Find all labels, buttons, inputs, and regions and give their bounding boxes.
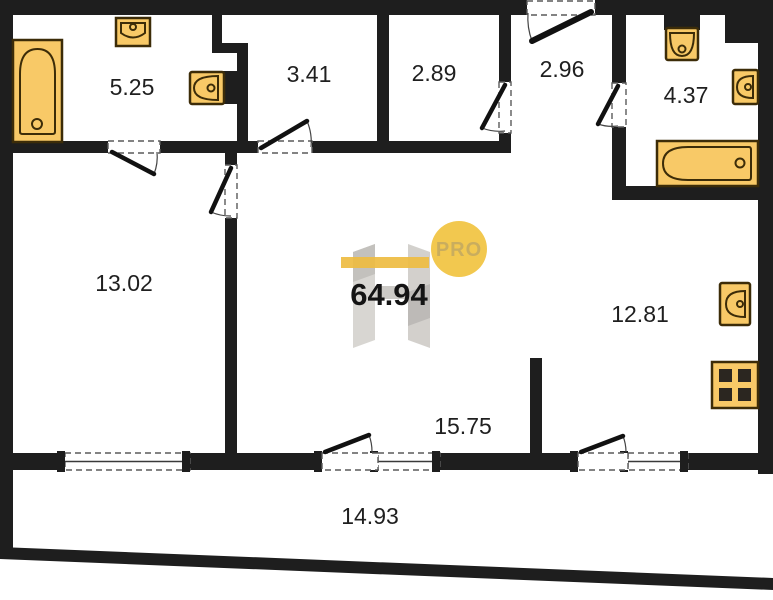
wall-bottom-4 [688, 453, 773, 470]
room-label-storage-left: 3.41 [287, 61, 332, 87]
door-bathroom-right [598, 83, 626, 127]
wall-bottom-3 [440, 453, 578, 470]
total-area-label: 64.94 [350, 277, 428, 312]
wall-corner-block [725, 15, 773, 43]
sink-left-icon [116, 18, 150, 46]
bathtub-right-icon [657, 141, 758, 186]
door-storage-left [258, 121, 312, 153]
wall-296-437-lower [612, 127, 626, 186]
room-label-kitchen: 12.81 [611, 301, 669, 327]
kitchen-sink-icon [720, 283, 750, 325]
wall-h2 [160, 141, 258, 153]
room-label-entry-hall: 2.96 [540, 56, 585, 82]
wall-525-341 [237, 53, 248, 141]
balcony-door-left [322, 435, 378, 470]
floor-plan-svg: PRO 64.94 5.25 3.41 2.89 2.96 4.37 13.02… [0, 0, 773, 600]
toilet-right-icon [666, 28, 698, 60]
toilet-left-icon [190, 72, 224, 104]
room-label-bathroom-left: 5.25 [110, 74, 155, 100]
wall-341-289 [377, 15, 389, 141]
wall-bedroom-lower [225, 218, 237, 453]
entrance-door [527, 1, 595, 41]
wall-right [758, 0, 773, 474]
wall-kitchen-stub [530, 358, 542, 453]
pro-label: PRO [436, 239, 482, 261]
wall-bottom-1 [0, 453, 65, 470]
bathtub-left-icon [13, 40, 62, 142]
wall-296-437-upper [612, 15, 626, 83]
wall-437-bottom [612, 186, 773, 200]
floor-plan: PRO 64.94 5.25 3.41 2.89 2.96 4.37 13.02… [0, 0, 773, 600]
balcony-door-right [578, 436, 628, 470]
room-label-storage-right: 2.89 [412, 60, 457, 86]
wall-left [0, 0, 13, 559]
wall-niche-h [212, 43, 248, 53]
wall-top-right [595, 0, 773, 15]
door-bedroom [211, 165, 237, 218]
wall-h3 [312, 141, 511, 153]
watermark-bar [341, 257, 429, 268]
sink-right-icon [733, 70, 758, 104]
room-label-balcony: 14.93 [341, 503, 399, 529]
room-label-bathroom-right: 4.37 [664, 82, 709, 108]
door-storage-right [482, 82, 511, 133]
stove-icon [712, 362, 758, 408]
room-label-living-zone: 15.75 [434, 413, 492, 439]
wall-bedroom-upper [225, 153, 237, 165]
door-bathroom-left [108, 141, 160, 174]
room-label-bedroom: 13.02 [95, 270, 153, 296]
wall-top-left [0, 0, 527, 15]
wall-balcony-slant [0, 547, 773, 590]
pro-badge: PRO [431, 221, 487, 277]
wall-bottom-2 [190, 453, 322, 470]
